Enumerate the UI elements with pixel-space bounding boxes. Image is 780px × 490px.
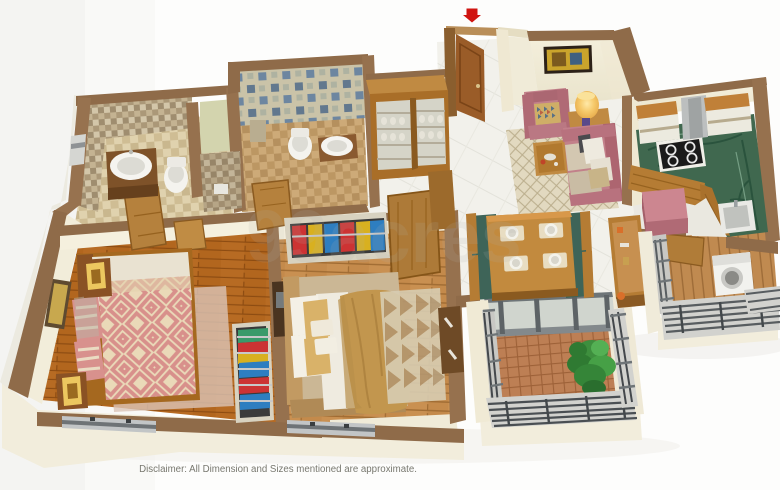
svg-text:99acres: 99acres	[246, 195, 522, 278]
